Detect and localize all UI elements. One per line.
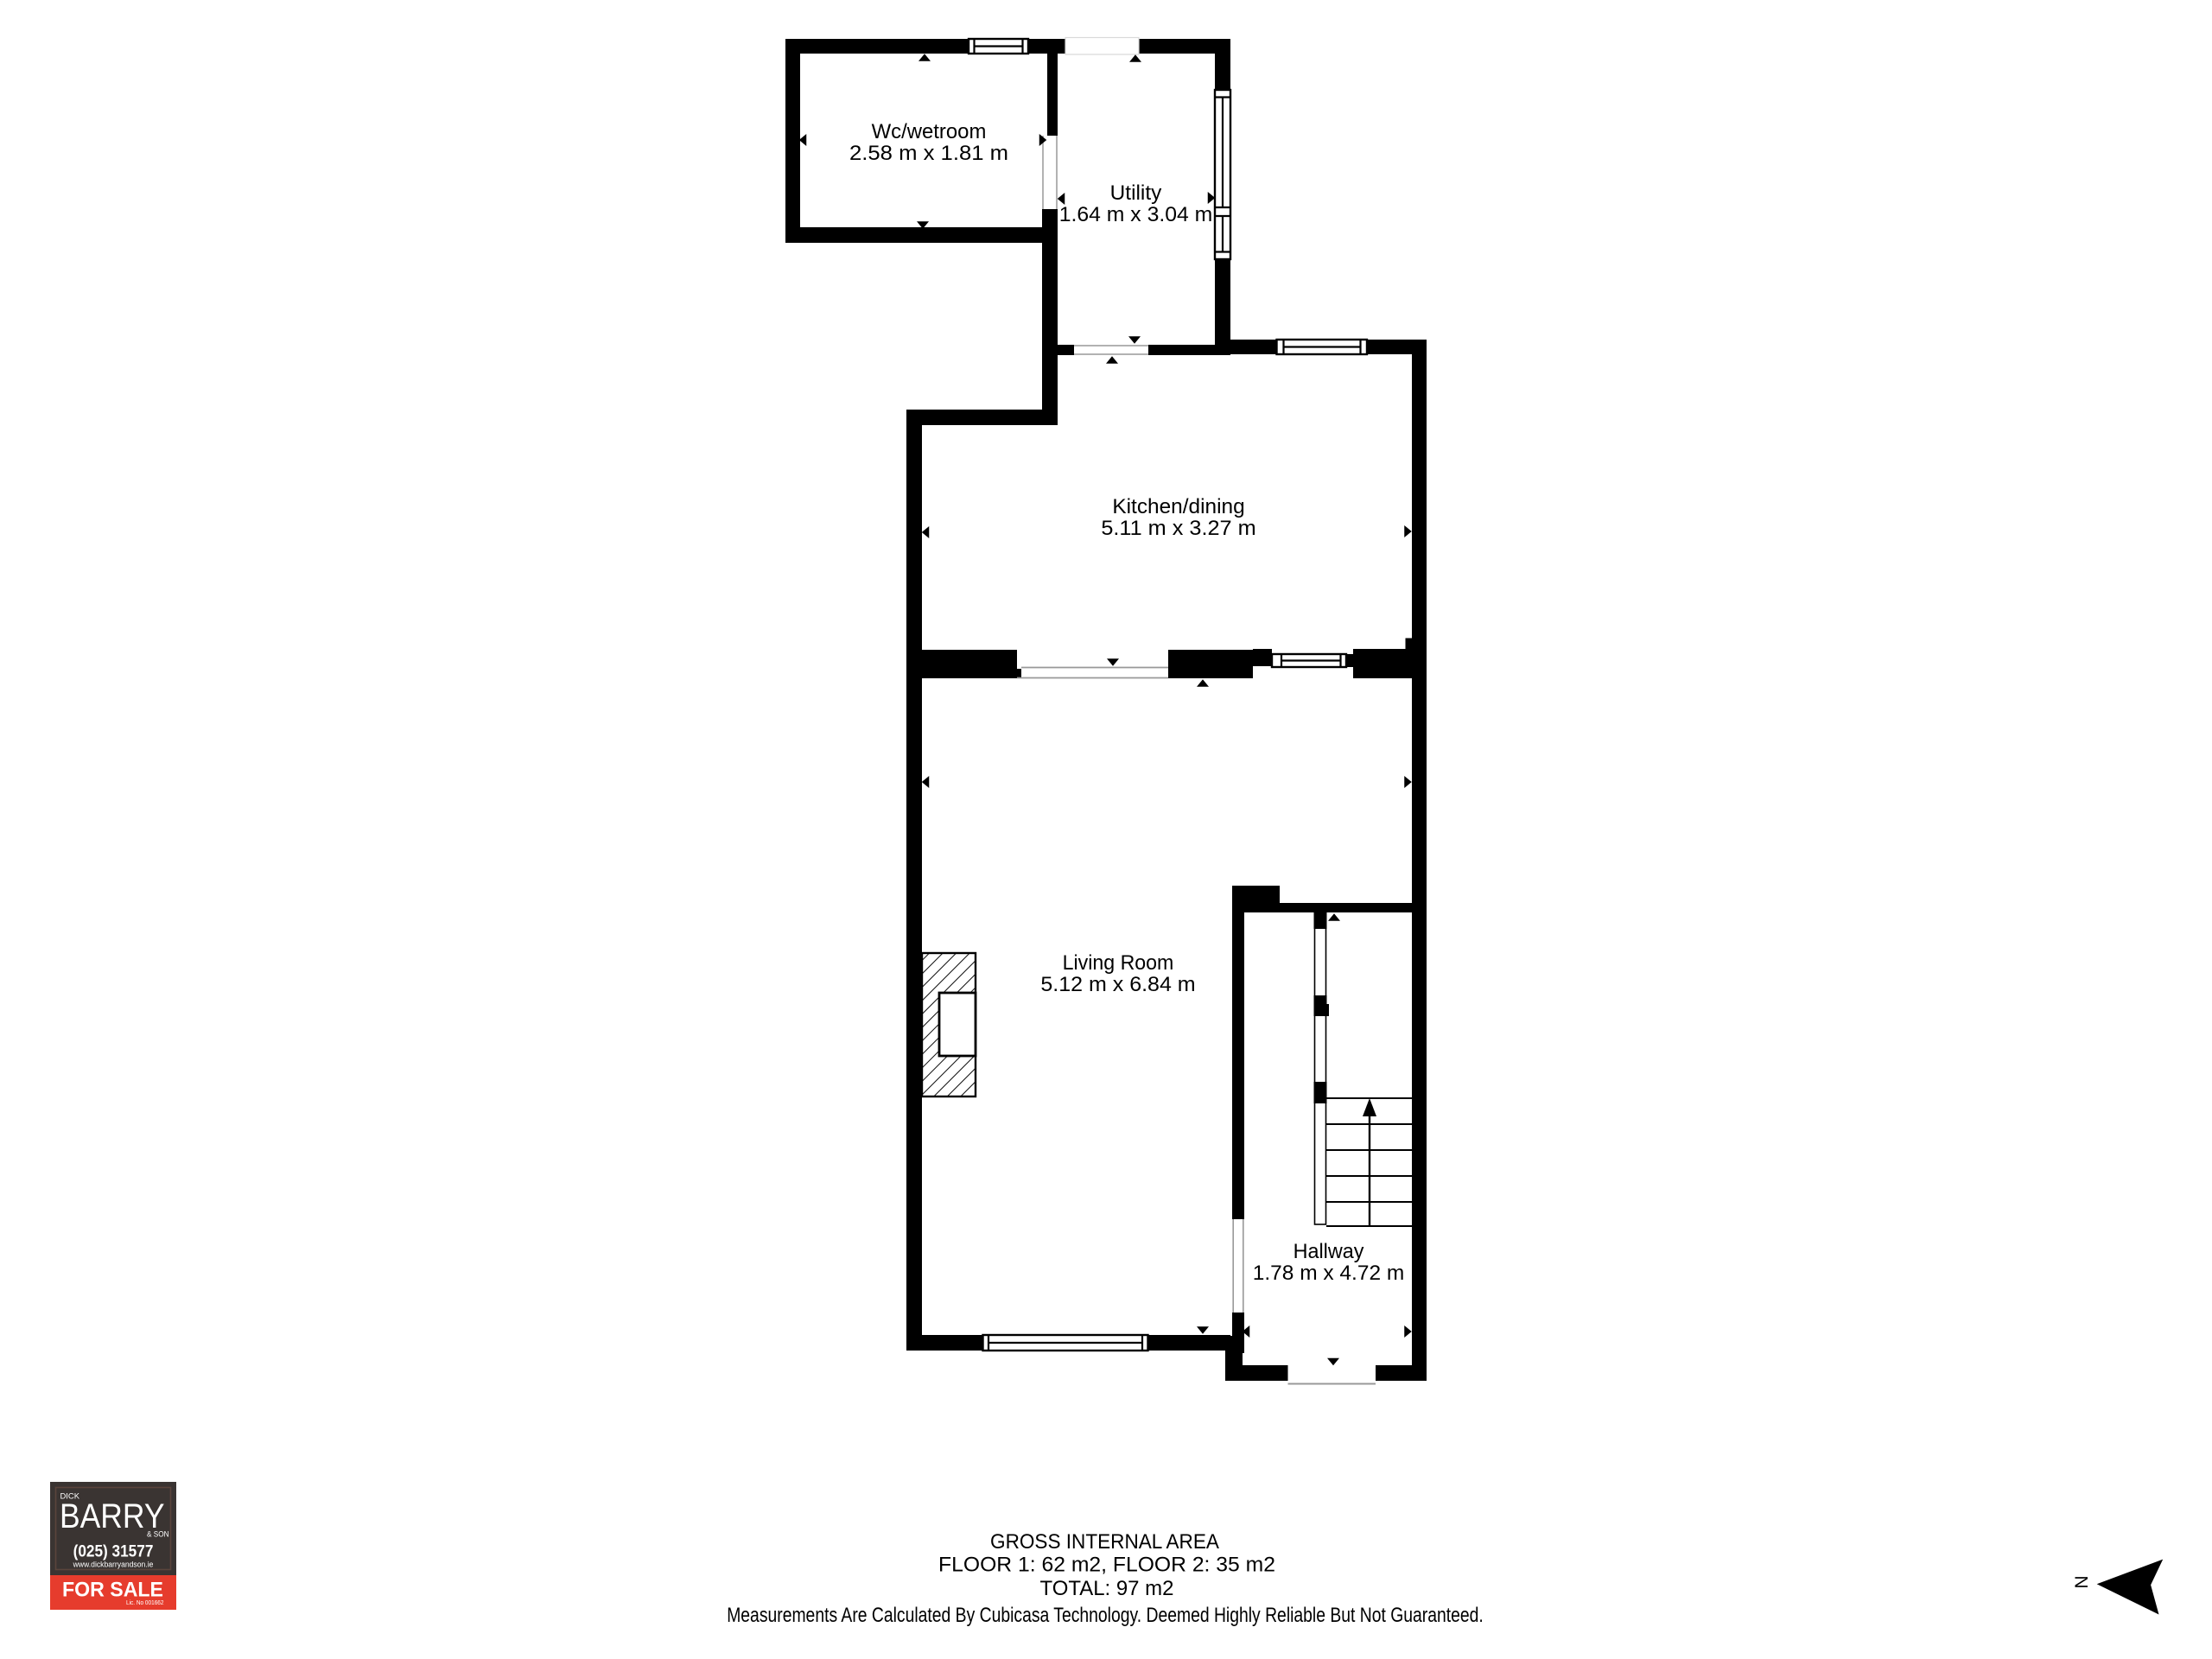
svg-text:TOTAL: 97 m2: TOTAL: 97 m2: [1040, 1577, 1174, 1600]
svg-text:Living Room: Living Room: [1063, 951, 1174, 975]
svg-text:GROSS INTERNAL AREA: GROSS INTERNAL AREA: [990, 1530, 1219, 1554]
svg-text:www.dickbarryandson.ie: www.dickbarryandson.ie: [73, 1560, 154, 1569]
svg-text:(025) 31577: (025) 31577: [73, 1542, 154, 1561]
svg-text:N: N: [2071, 1575, 2091, 1588]
svg-text:Utility: Utility: [1110, 181, 1162, 205]
svg-text:1.78 m x 4.72 m: 1.78 m x 4.72 m: [1253, 1262, 1405, 1285]
svg-text:Lic. No 001662: Lic. No 001662: [126, 1599, 164, 1606]
svg-text:5.12 m x 6.84 m: 5.12 m x 6.84 m: [1040, 973, 1195, 996]
svg-text:2.58 m x 1.81 m: 2.58 m x 1.81 m: [849, 142, 1008, 165]
svg-text:Kitchen/dining: Kitchen/dining: [1112, 495, 1244, 518]
svg-text:1.64 m x 3.04 m: 1.64 m x 3.04 m: [1059, 203, 1213, 226]
svg-text:Hallway: Hallway: [1294, 1240, 1364, 1263]
svg-text:5.11 m x 3.27 m: 5.11 m x 3.27 m: [1101, 517, 1255, 540]
svg-text:& SON: & SON: [147, 1530, 169, 1540]
svg-text:Measurements Are Calculated By: Measurements Are Calculated By Cubicasa …: [727, 1604, 1484, 1627]
svg-text:FLOOR 1: 62 m2, FLOOR 2: 35 m2: FLOOR 1: 62 m2, FLOOR 2: 35 m2: [938, 1554, 1275, 1577]
svg-text:Wc/wetroom: Wc/wetroom: [872, 120, 987, 143]
